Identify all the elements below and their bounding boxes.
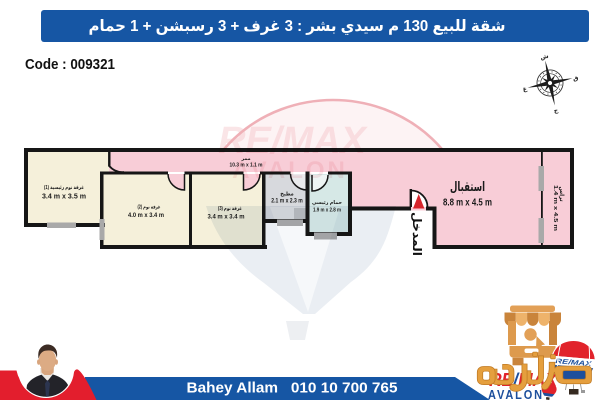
svg-text:8.8 m x 4.5 m: 8.8 m x 4.5 m xyxy=(443,198,492,209)
svg-text:استقبال: استقبال xyxy=(450,179,485,194)
svg-text:حمام رئيسي: حمام رئيسي xyxy=(312,200,342,206)
svg-text:3.4 m x 3.5 m: 3.4 m x 3.5 m xyxy=(42,192,86,201)
svg-text:1.4 m x 4.5 m: 1.4 m x 4.5 m xyxy=(552,185,558,231)
svg-text:4.0 m x 3.4 m: 4.0 m x 3.4 m xyxy=(128,212,164,219)
svg-text:AVALON: AVALON xyxy=(232,157,348,184)
svg-text:2.1 m x 2.3 m: 2.1 m x 2.3 m xyxy=(271,199,303,205)
svg-text:شقة للبيع 130 م سيدي بشر : 3: شقة للبيع 130 م سيدي بشر : 3 غرف + 3 رسب… xyxy=(88,18,505,36)
svg-text:RE/MAX: RE/MAX xyxy=(218,120,368,162)
svg-text:غرفة نوم رئيسية (1): غرفة نوم رئيسية (1) xyxy=(44,185,84,191)
svg-text:غرفة نوم (2): غرفة نوم (2) xyxy=(138,205,161,211)
svg-text:Bahey Allam 010 10 700 765: Bahey Allam 010 10 700 765 xyxy=(187,381,398,397)
svg-text:Code : 009321: Code : 009321 xyxy=(25,57,115,73)
svg-text:مطبخ: مطبخ xyxy=(280,192,294,198)
svg-text:المدخل: المدخل xyxy=(410,212,424,256)
